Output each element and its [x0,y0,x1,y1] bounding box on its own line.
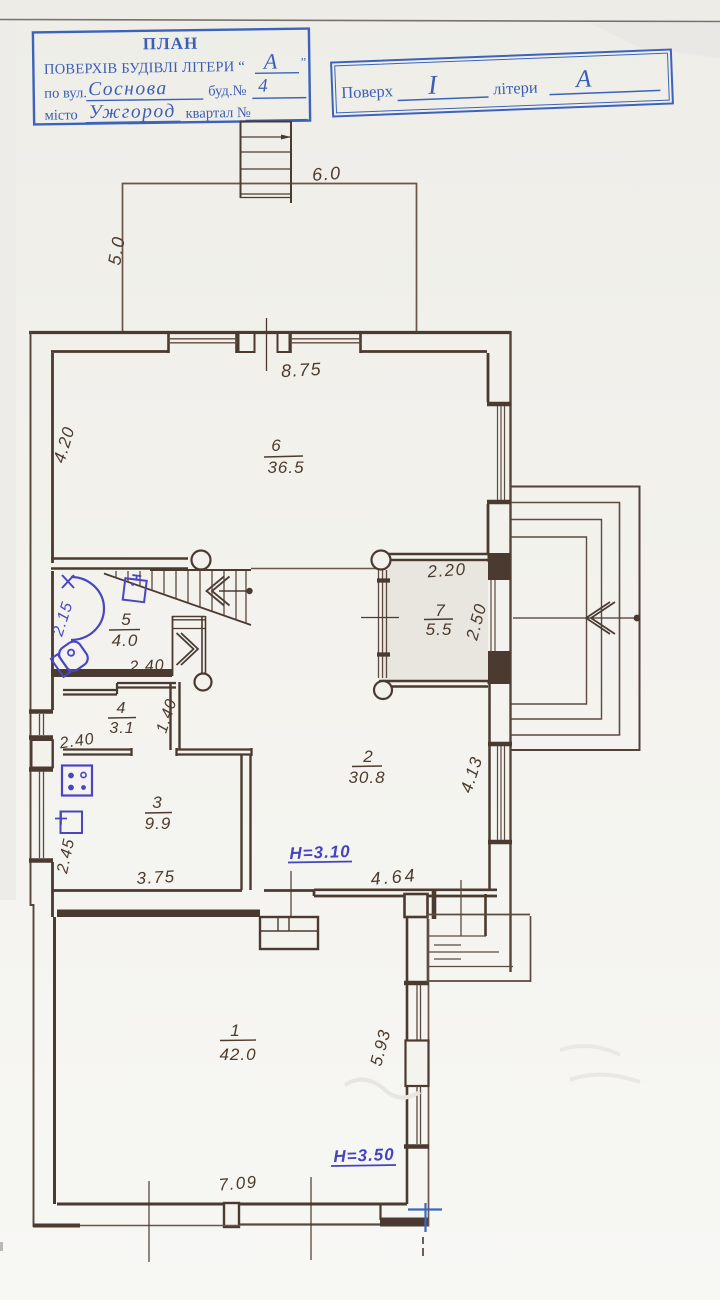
svg-text:Н=3.10: Н=3.10 [289,842,351,863]
svg-text:4: 4 [117,700,126,717]
svg-text:3.1: 3.1 [109,720,134,737]
svg-text:буд.№: буд.№ [208,83,247,100]
svg-text:4: 4 [258,76,268,97]
svg-text:36.5: 36.5 [267,458,304,477]
svg-text:6.0: 6.0 [311,163,342,185]
svg-text:4.64: 4.64 [370,865,419,889]
svg-text:А: А [262,49,278,74]
svg-text:ПОВЕРХІВ БУДІВЛІ ЛІТЕРИ “: ПОВЕРХІВ БУДІВЛІ ЛІТЕРИ “ [44,59,245,78]
svg-text:літери: літери [493,78,538,99]
svg-text:5.5: 5.5 [426,620,453,639]
svg-text:3: 3 [152,793,162,812]
svg-text:4.0: 4.0 [112,631,139,650]
svg-text:5: 5 [121,610,131,629]
svg-text:місто: місто [44,107,77,123]
svg-text:по вул.: по вул. [44,85,87,102]
svg-text:ПЛАН: ПЛАН [143,34,199,54]
svg-text:А: А [573,66,592,94]
svg-text:7.09: 7.09 [218,1172,259,1194]
svg-text:2: 2 [362,747,373,766]
svg-text:42.0: 42.0 [219,1045,256,1064]
svg-text:2.20: 2.20 [426,560,467,582]
svg-text:7: 7 [435,601,445,620]
svg-text:Н=3.50: Н=3.50 [333,1145,395,1166]
svg-text:квартал №: квартал № [185,105,251,122]
svg-text:2.40: 2.40 [128,657,165,676]
svg-text:1: 1 [230,1021,239,1040]
svg-text:30.8: 30.8 [348,768,385,787]
svg-text:6: 6 [271,436,281,455]
svg-text:”: ” [301,55,307,69]
svg-text:9.9: 9.9 [145,814,172,833]
svg-text:Соснова: Соснова [88,78,168,100]
svg-text:Ужгород: Ужгород [88,101,176,123]
svg-text:3.75: 3.75 [136,867,176,888]
svg-text:Поверх: Поверх [341,81,394,102]
svg-text:8.75: 8.75 [281,359,323,381]
